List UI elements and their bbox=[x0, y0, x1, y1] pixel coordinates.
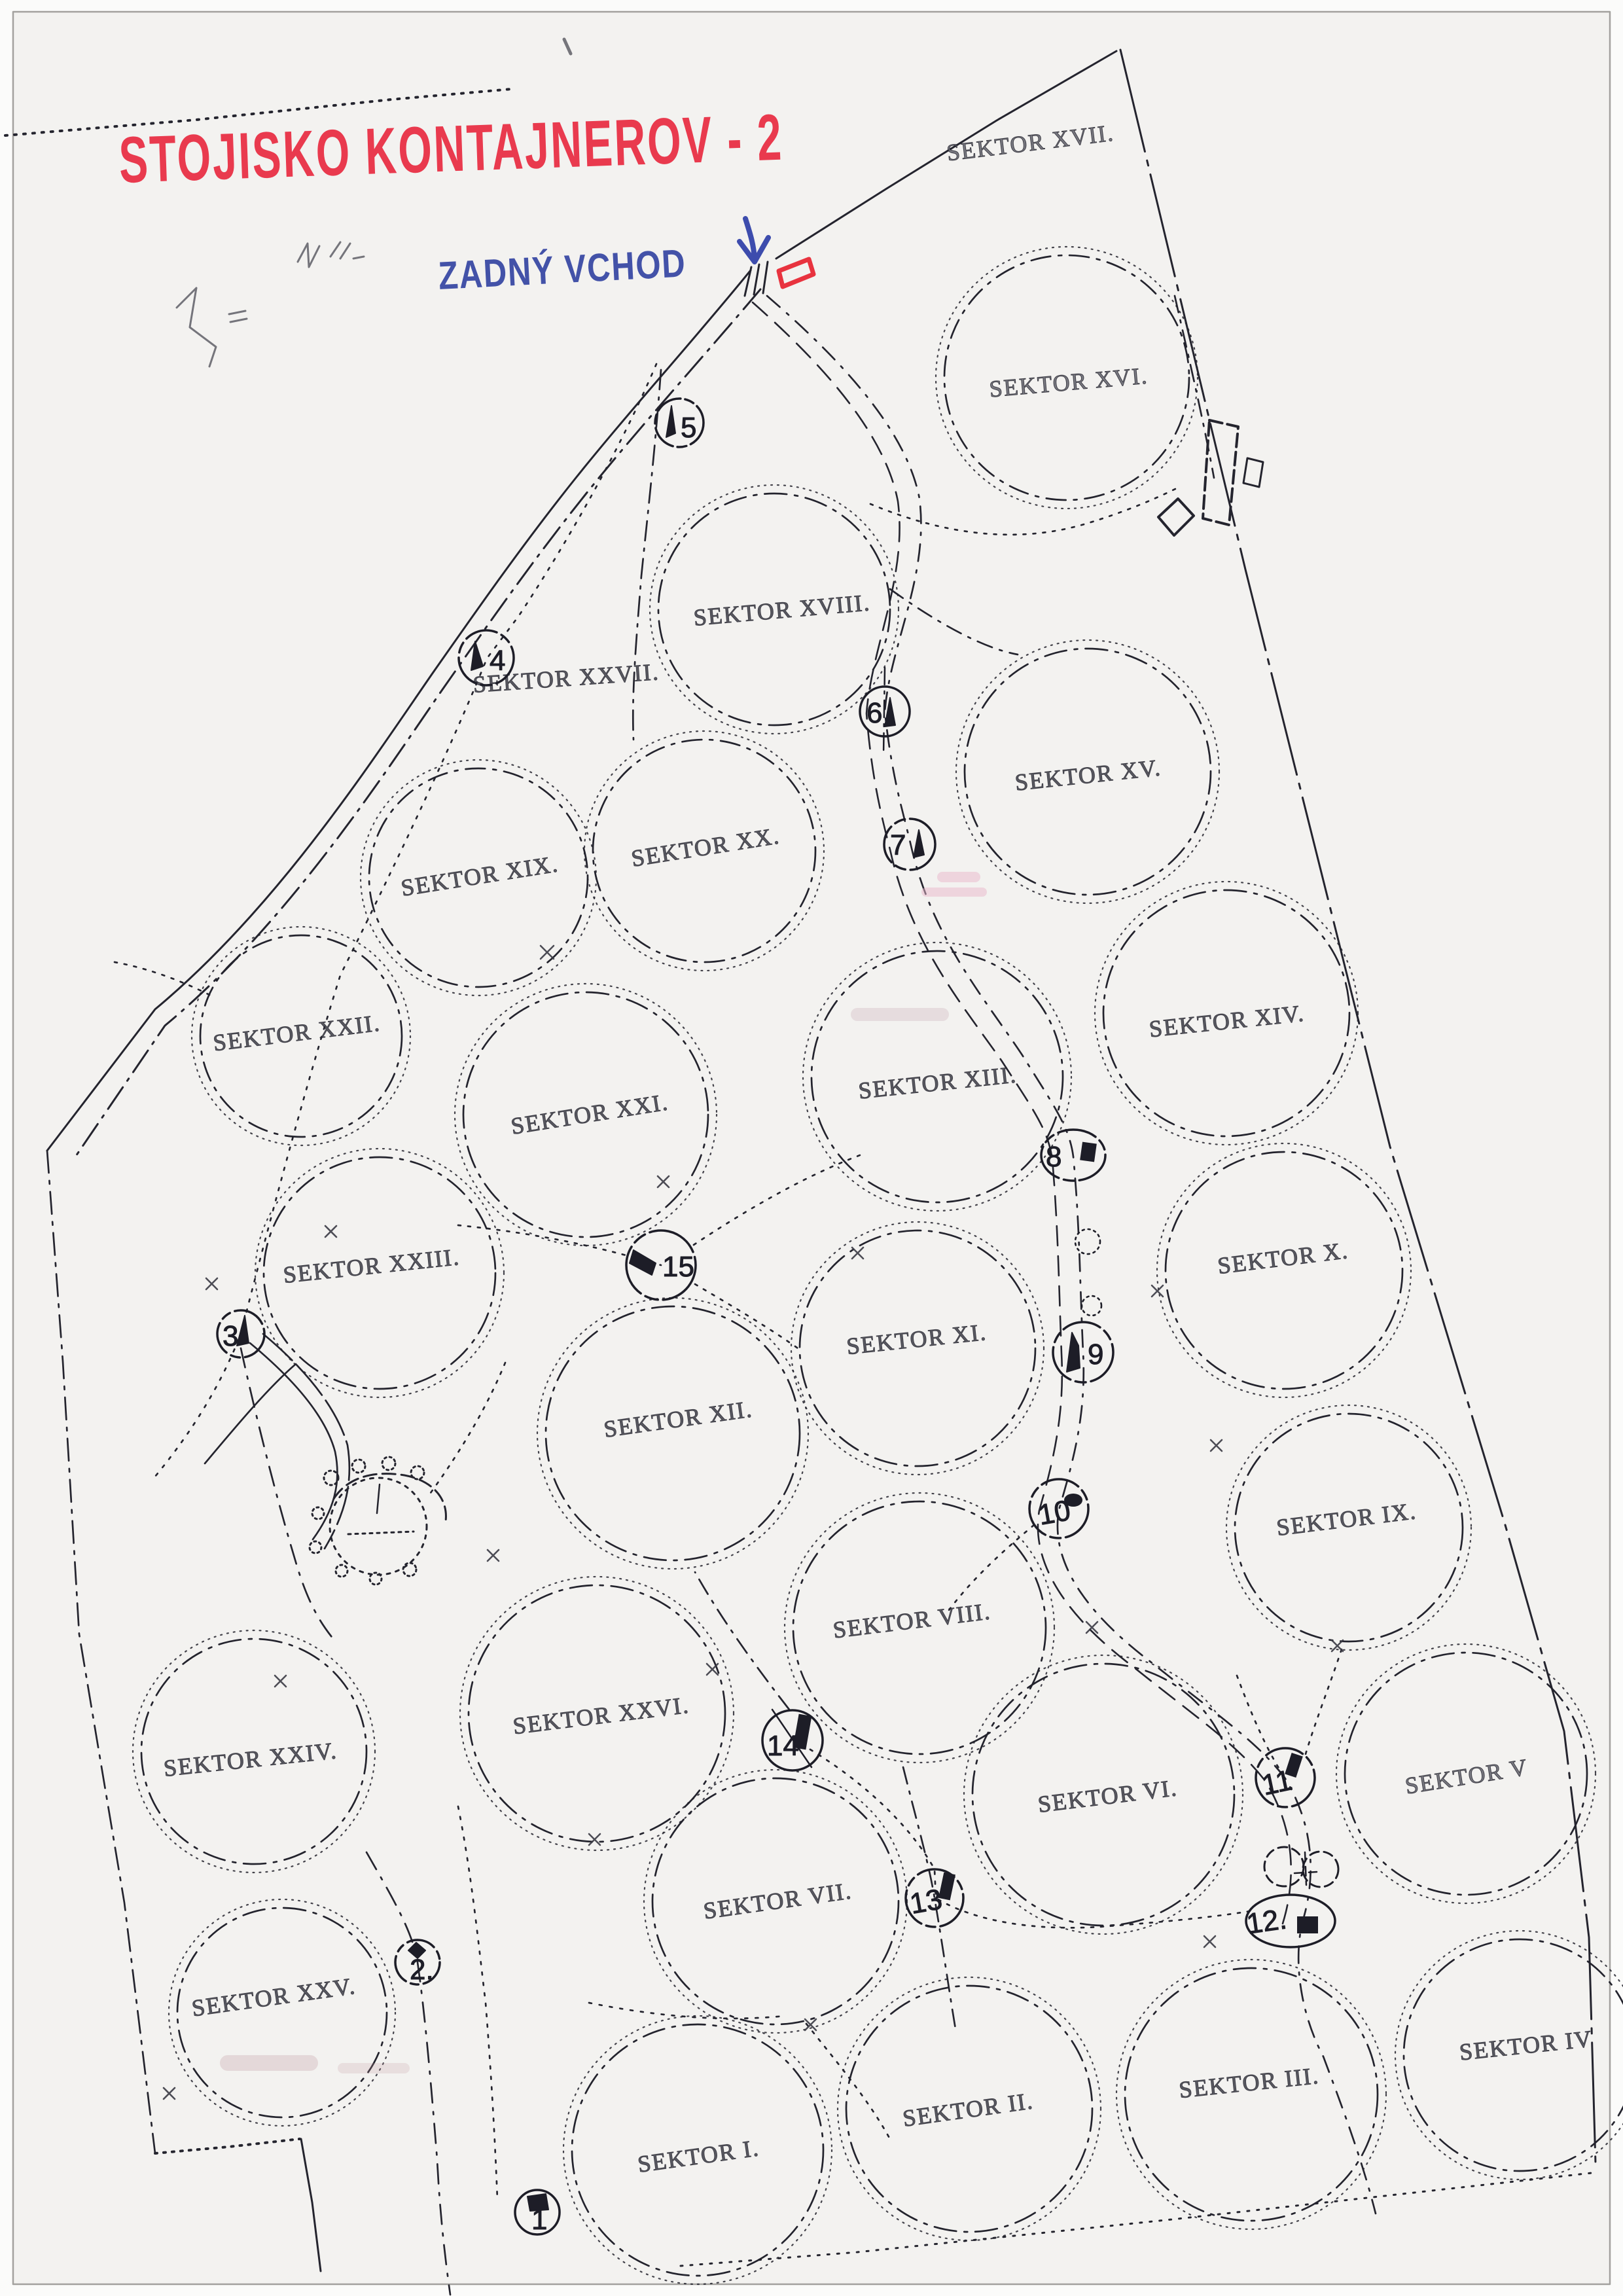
svg-text:9: 9 bbox=[1088, 1338, 1103, 1371]
svg-text:7: 7 bbox=[890, 829, 906, 861]
svg-text:14: 14 bbox=[767, 1730, 799, 1762]
svg-text:4: 4 bbox=[490, 645, 505, 677]
svg-text:8: 8 bbox=[1046, 1141, 1061, 1173]
svg-text:6: 6 bbox=[866, 697, 882, 729]
svg-text:1: 1 bbox=[531, 2204, 547, 2236]
svg-text:12.: 12. bbox=[1245, 1903, 1289, 1940]
svg-text:2.: 2. bbox=[410, 1954, 434, 1986]
svg-text:10: 10 bbox=[1036, 1494, 1073, 1532]
svg-text:13: 13 bbox=[908, 1883, 945, 1920]
svg-text:15: 15 bbox=[662, 1251, 694, 1283]
svg-text:5: 5 bbox=[681, 412, 696, 444]
svg-text:3: 3 bbox=[223, 1320, 238, 1352]
